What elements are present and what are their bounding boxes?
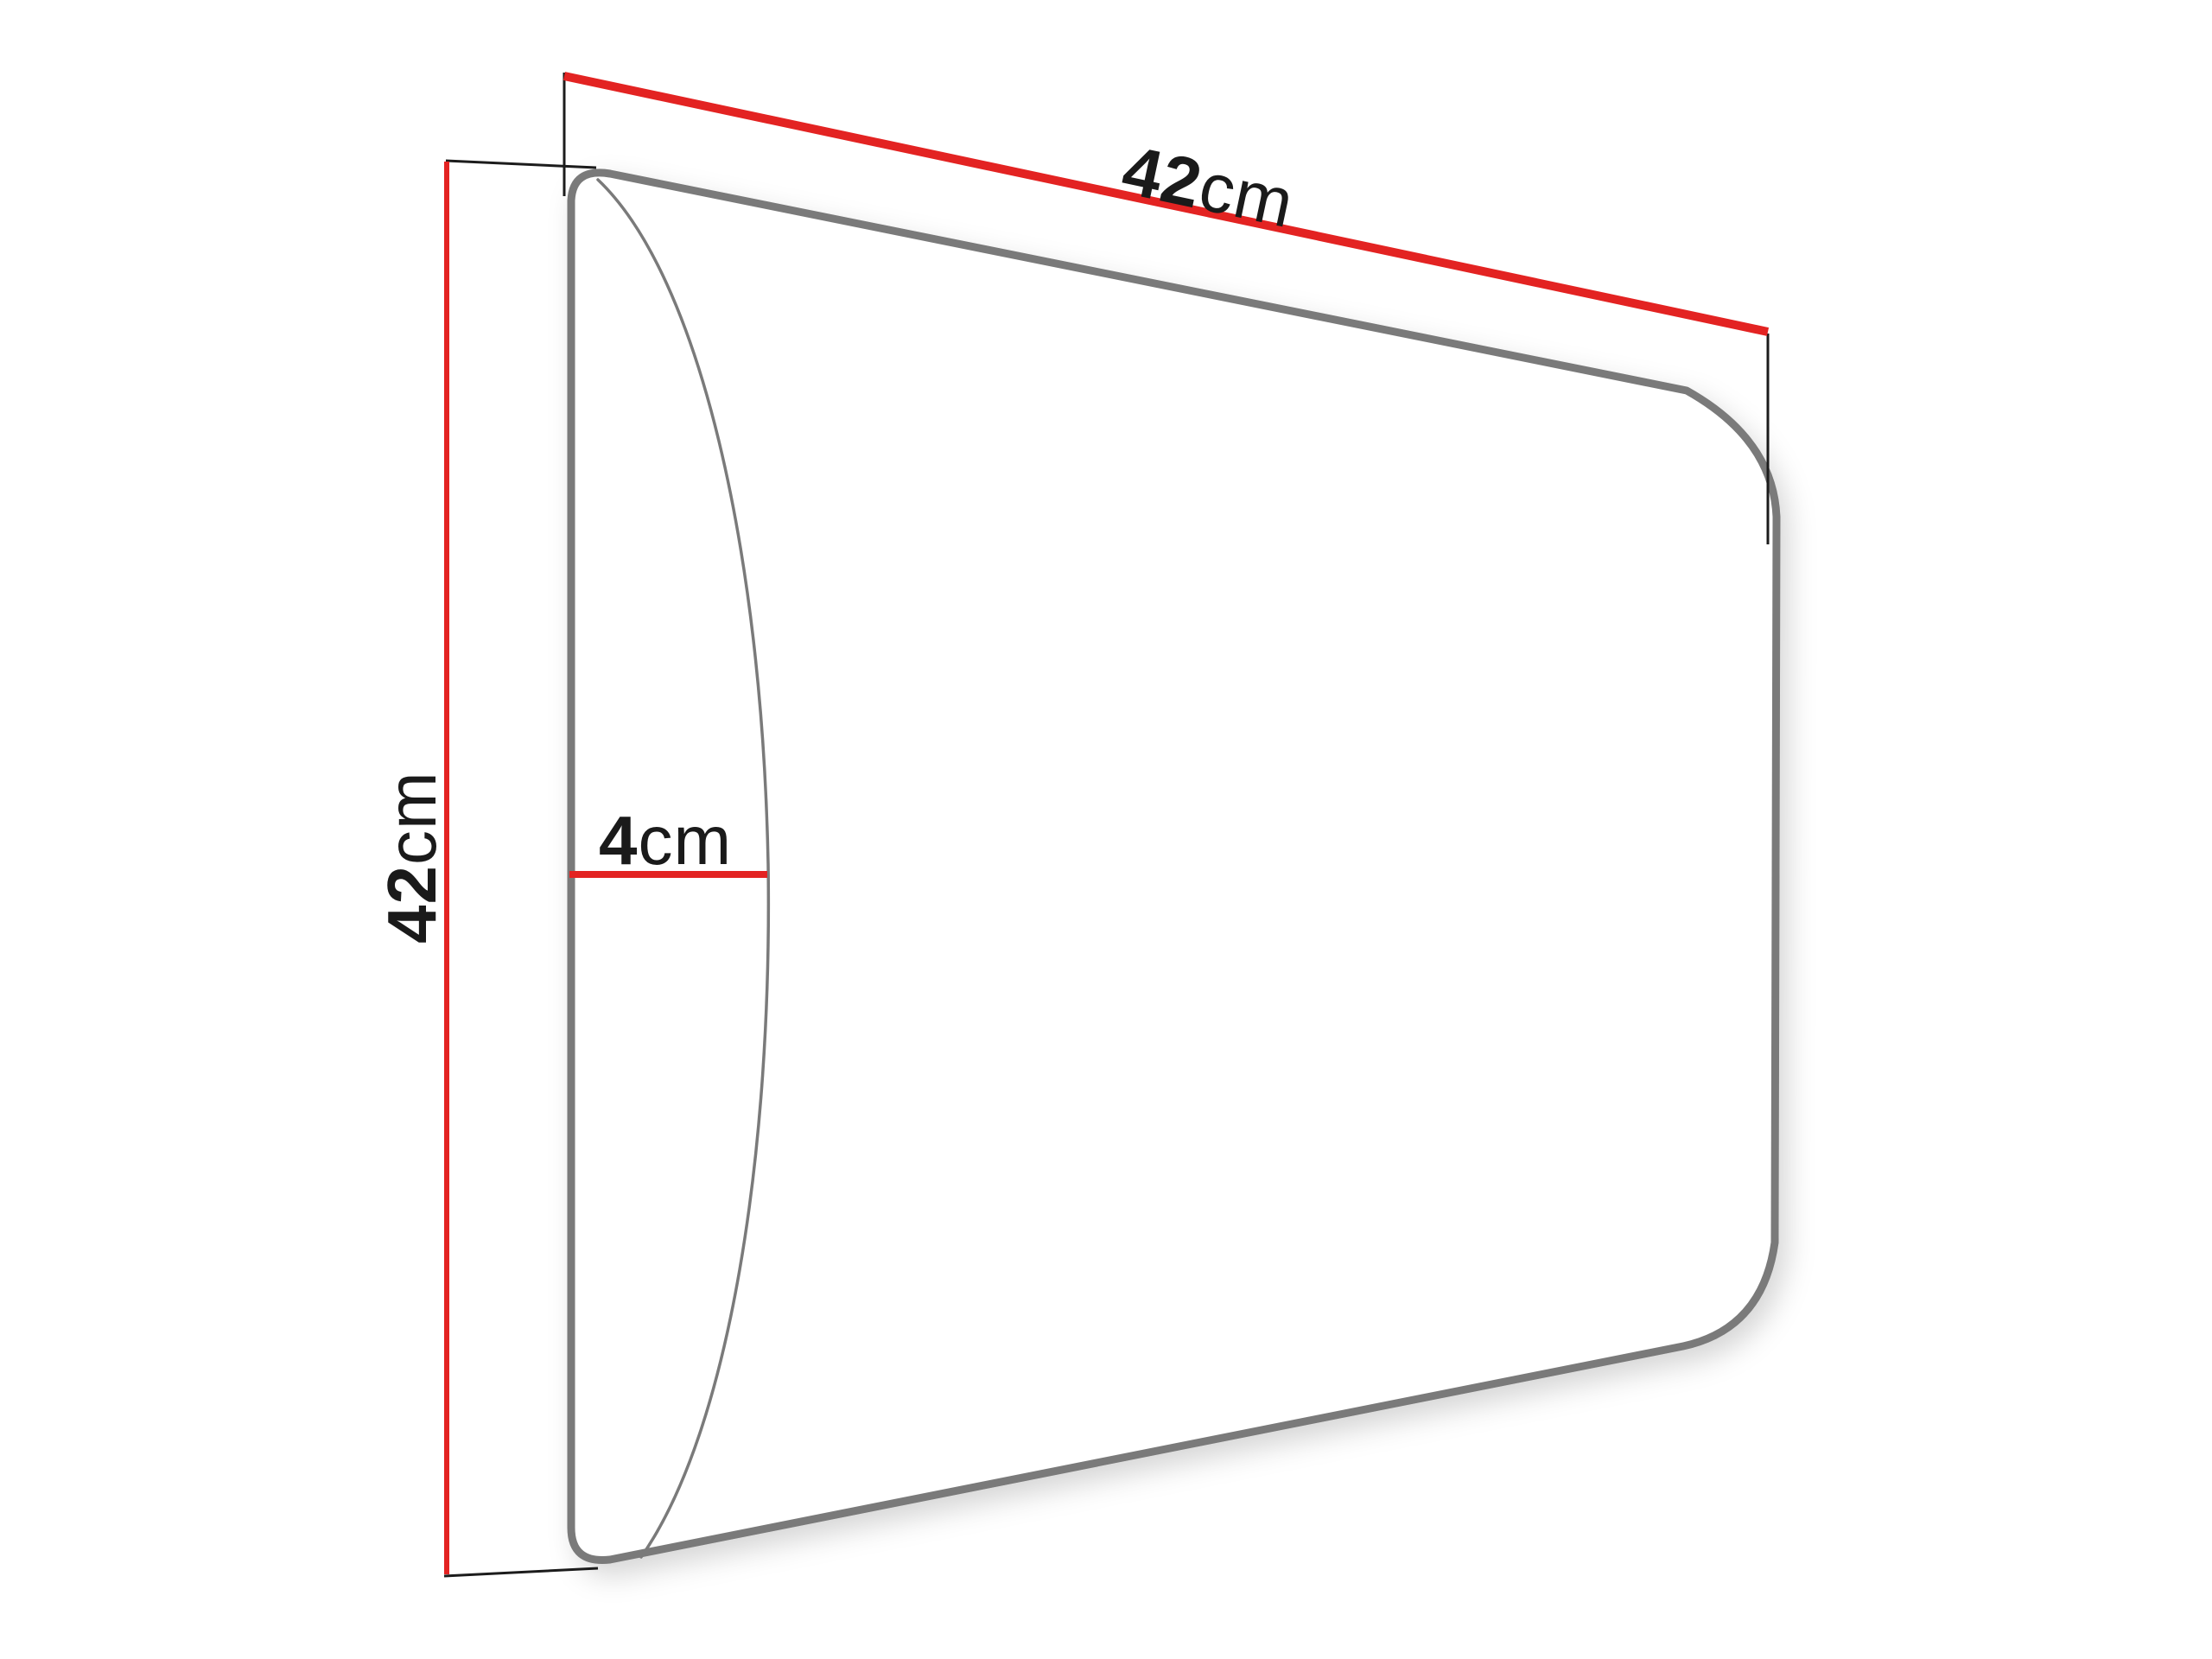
height-value: 42	[373, 865, 450, 944]
panel-outline	[571, 173, 1777, 1560]
upholstered-panel-dimension-diagram: 42cm 42cm 4cm	[0, 0, 2212, 1659]
height-unit: cm	[373, 771, 450, 865]
height-dimension-label: 42cm	[373, 771, 450, 944]
depth-unit: cm	[639, 802, 733, 879]
depth-value: 4	[599, 802, 639, 879]
dimension-diagram-canvas: 42cm 42cm 4cm	[0, 0, 2212, 1659]
depth-dimension-label: 4cm	[599, 802, 732, 879]
